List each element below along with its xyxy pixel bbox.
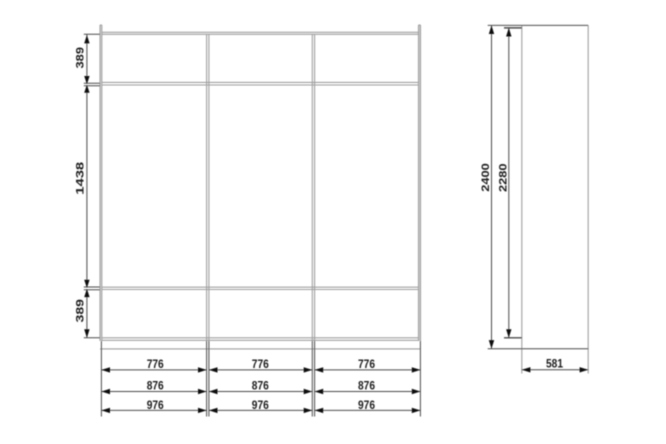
svg-text:2400: 2400 xyxy=(480,163,492,192)
svg-text:776: 776 xyxy=(358,359,375,371)
svg-text:876: 876 xyxy=(252,380,269,392)
svg-text:976: 976 xyxy=(358,400,375,412)
svg-text:776: 776 xyxy=(147,359,164,371)
svg-text:581: 581 xyxy=(546,358,564,370)
svg-text:1438: 1438 xyxy=(74,162,86,195)
svg-text:876: 876 xyxy=(358,380,375,392)
svg-text:976: 976 xyxy=(147,400,164,412)
svg-text:776: 776 xyxy=(252,359,269,371)
svg-text:389: 389 xyxy=(74,299,86,323)
svg-text:2280: 2280 xyxy=(497,164,509,193)
svg-text:976: 976 xyxy=(252,400,269,412)
svg-text:876: 876 xyxy=(147,380,164,392)
svg-text:389: 389 xyxy=(74,47,86,69)
